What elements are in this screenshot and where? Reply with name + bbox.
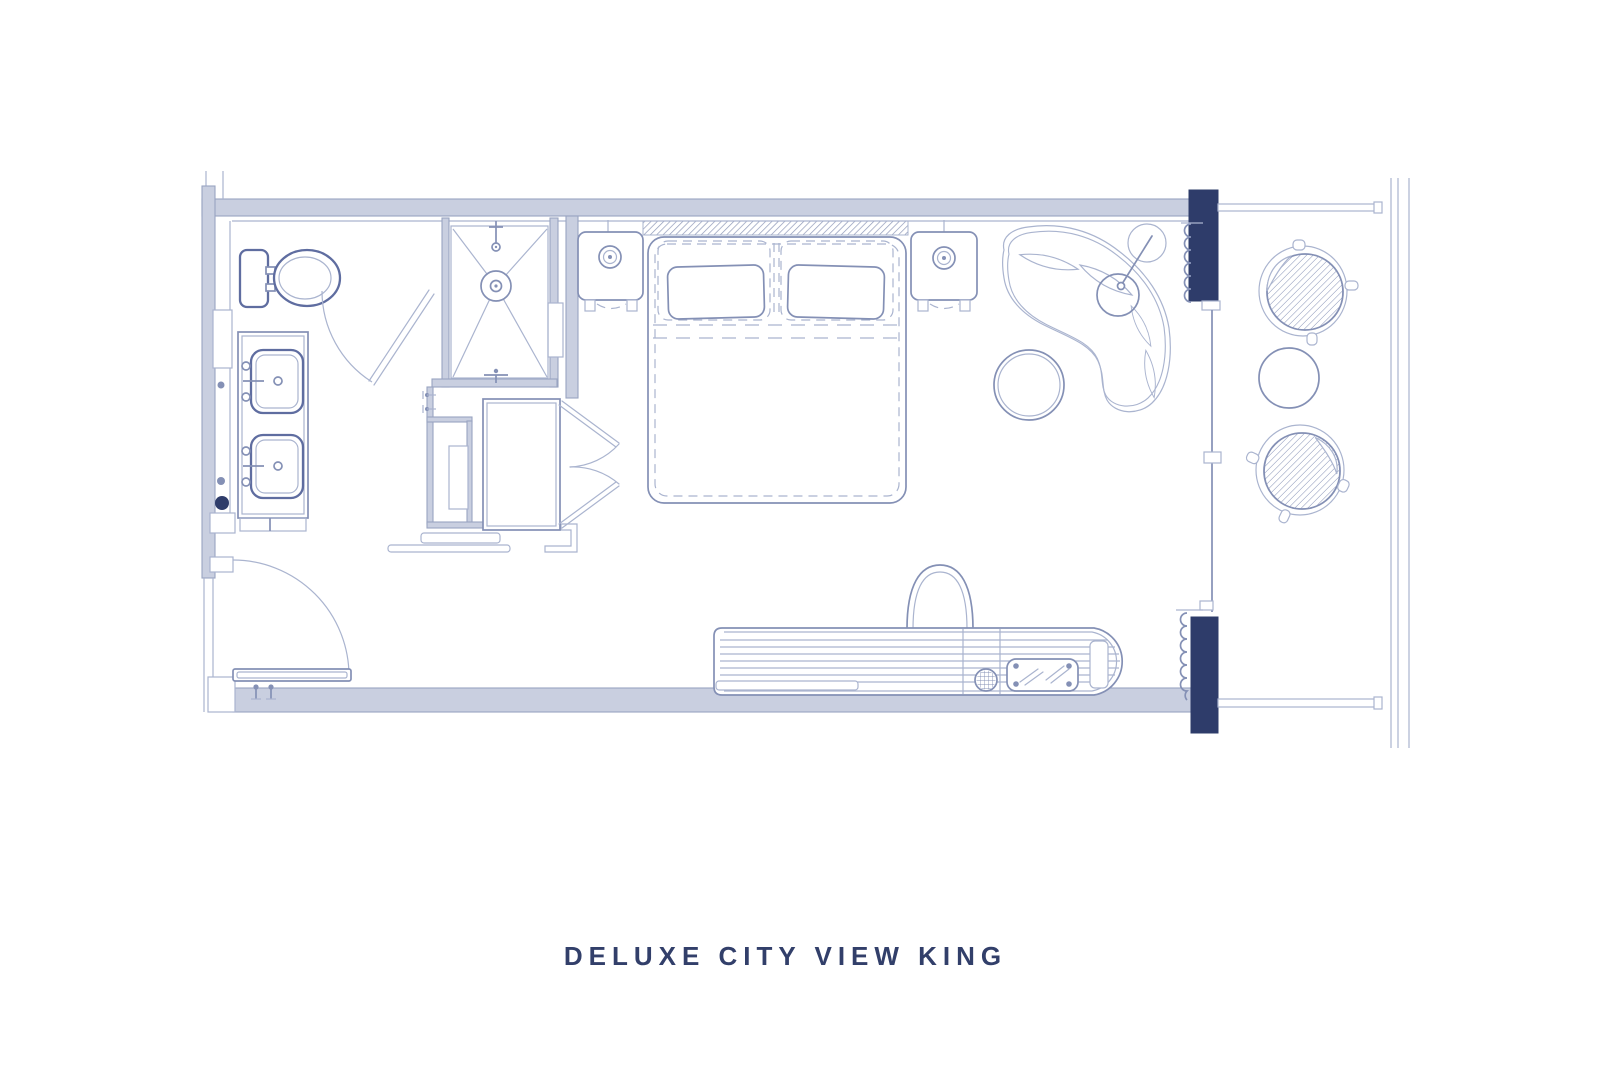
wall-dot (218, 382, 225, 389)
balcony-table (1259, 348, 1319, 408)
knob (975, 669, 997, 691)
king-bed (643, 221, 908, 503)
curtain-bottom (1181, 613, 1188, 700)
closet-door-leaf (559, 467, 619, 528)
nightstand-trim (597, 304, 626, 309)
pier-cap (1200, 601, 1213, 610)
tv (901, 565, 979, 629)
toilet-bowl (274, 250, 340, 306)
bottom-wall-end-cap (208, 677, 235, 712)
toilet-hinge (266, 284, 275, 291)
pier-cap (1202, 301, 1220, 310)
door-jamb (210, 557, 233, 572)
shower-niche (548, 303, 563, 357)
vanity-base (240, 518, 306, 531)
headboard (643, 221, 908, 235)
luggage-bench (421, 533, 500, 543)
shower-floor-slope-lines (453, 229, 547, 377)
shower-wall-bottom (432, 379, 557, 387)
rail-end-cap (1374, 202, 1382, 213)
nightstand-right (911, 220, 977, 311)
door-leaf (369, 290, 434, 385)
bathroom-bedroom-wall (566, 216, 578, 398)
wardrobe-closet (388, 391, 619, 552)
sink (242, 435, 303, 498)
balcony-chair-bottom (1228, 415, 1362, 542)
tv-console (714, 565, 1122, 695)
balcony-rail-bottom (1218, 699, 1376, 707)
shower-wall-left (442, 218, 449, 387)
toilet-tank (240, 250, 268, 307)
window-pier-bottom (1191, 617, 1218, 733)
bathroom-door (322, 290, 434, 385)
console-ledge (716, 681, 858, 690)
nightstand-foot (960, 300, 970, 311)
balcony-chair-top (1259, 240, 1358, 345)
nightstand-trim (930, 304, 959, 309)
rail-end-cap (1374, 697, 1382, 709)
floorplan-canvas (0, 0, 1621, 1080)
wall-cap (210, 513, 235, 533)
room-title: DELUXE CITY VIEW KING (0, 941, 1596, 972)
wall-dot (217, 477, 225, 485)
closet-wall-jog (427, 417, 472, 422)
top-wall (202, 199, 1191, 216)
luggage-shelf (388, 545, 510, 552)
nightstand-foot (627, 300, 637, 311)
sink (242, 350, 303, 413)
vanity (238, 332, 308, 531)
nightstand-left (578, 220, 643, 311)
nightstand-foot (918, 300, 928, 311)
tv-outline (907, 565, 973, 629)
entry-door (233, 560, 351, 681)
minibar-tray (1007, 659, 1078, 691)
door-swing-arc (570, 467, 619, 484)
toilet (240, 250, 340, 307)
door-swing-arc (570, 444, 619, 467)
window-handle (1204, 452, 1221, 463)
shower (451, 221, 548, 383)
table-lamp-left (599, 246, 621, 268)
closet-box (483, 399, 560, 530)
window-pier-top (1189, 190, 1218, 301)
table-lamp-right (933, 247, 955, 269)
door-swing-arc (322, 291, 372, 382)
floorplan-page: DELUXE CITY VIEW KING (0, 0, 1621, 1080)
balcony (1218, 178, 1409, 748)
door-leaf (233, 669, 351, 681)
wall-niche (213, 310, 232, 368)
door-swing-arc (233, 560, 349, 676)
balcony-rail-top (1218, 204, 1376, 211)
window-wall (1176, 190, 1221, 733)
wall-dot-large (215, 496, 229, 510)
closet-door-leaf (559, 401, 619, 467)
nightstand-foot (585, 300, 595, 311)
side-table (994, 350, 1064, 420)
tv-inner (913, 572, 967, 629)
closet-safe (449, 446, 468, 509)
console-end-panel (1090, 641, 1108, 688)
